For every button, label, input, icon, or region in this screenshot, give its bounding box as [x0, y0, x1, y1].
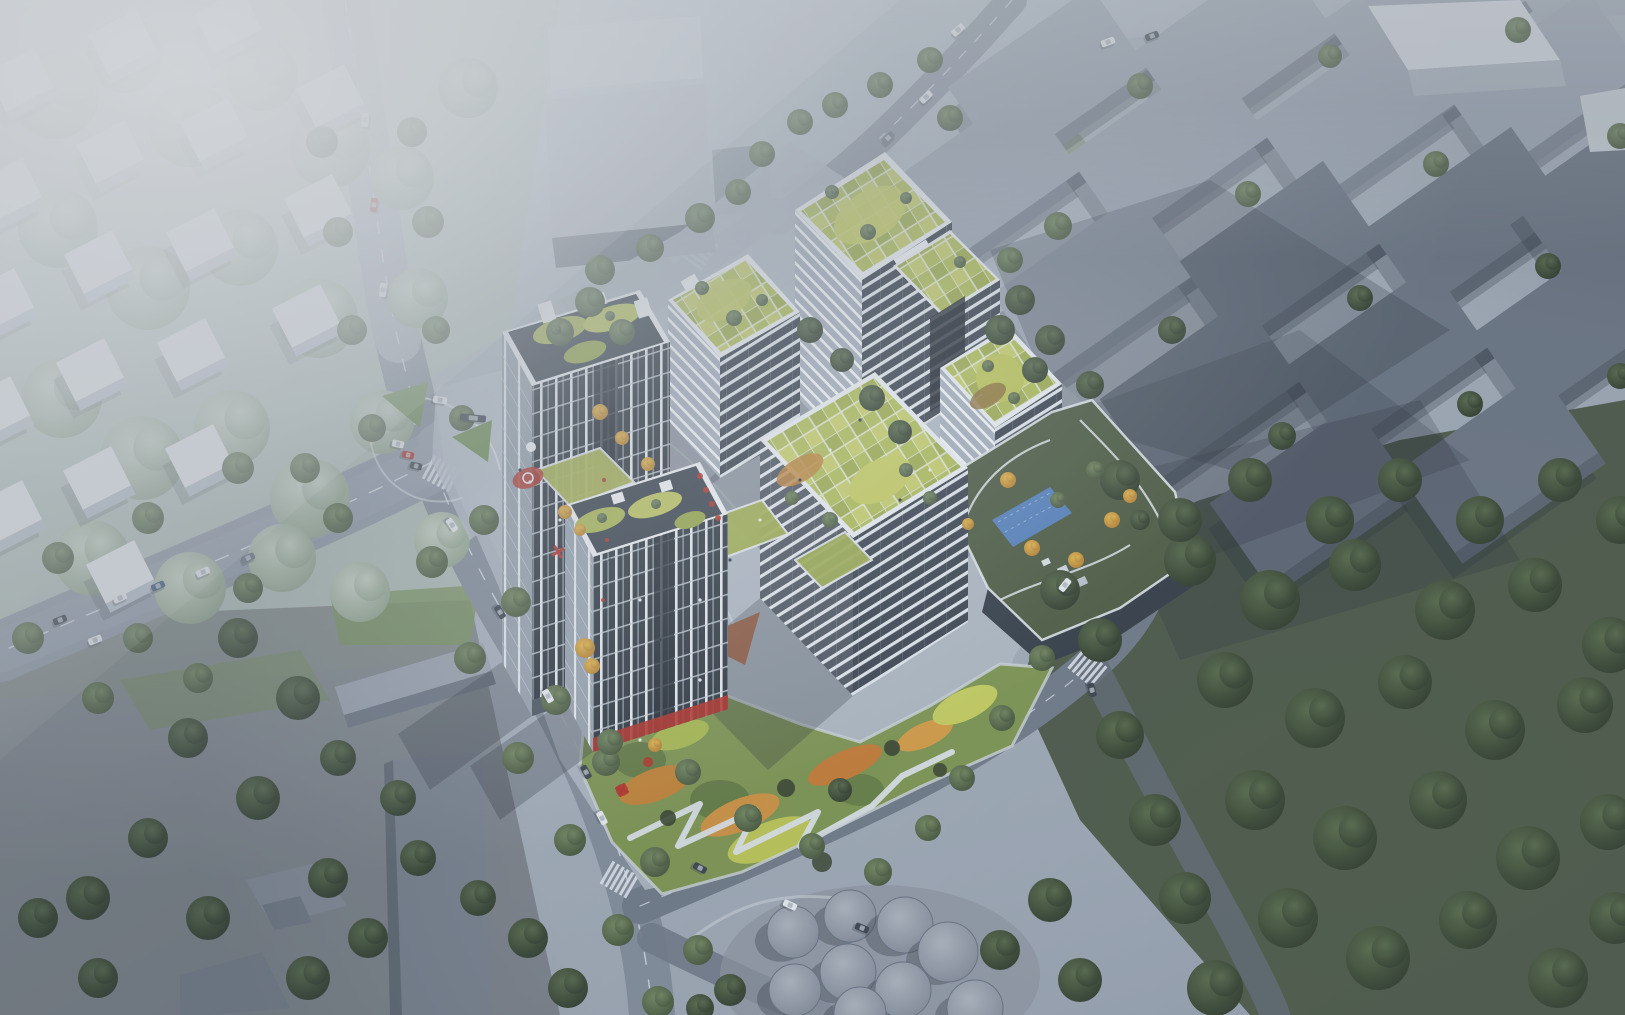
aerial-render-stage: [0, 0, 1625, 1015]
blue-tint: [0, 0, 1625, 1015]
atmosphere: [0, 0, 1625, 1015]
aerial-render-canvas: [0, 0, 1625, 1015]
